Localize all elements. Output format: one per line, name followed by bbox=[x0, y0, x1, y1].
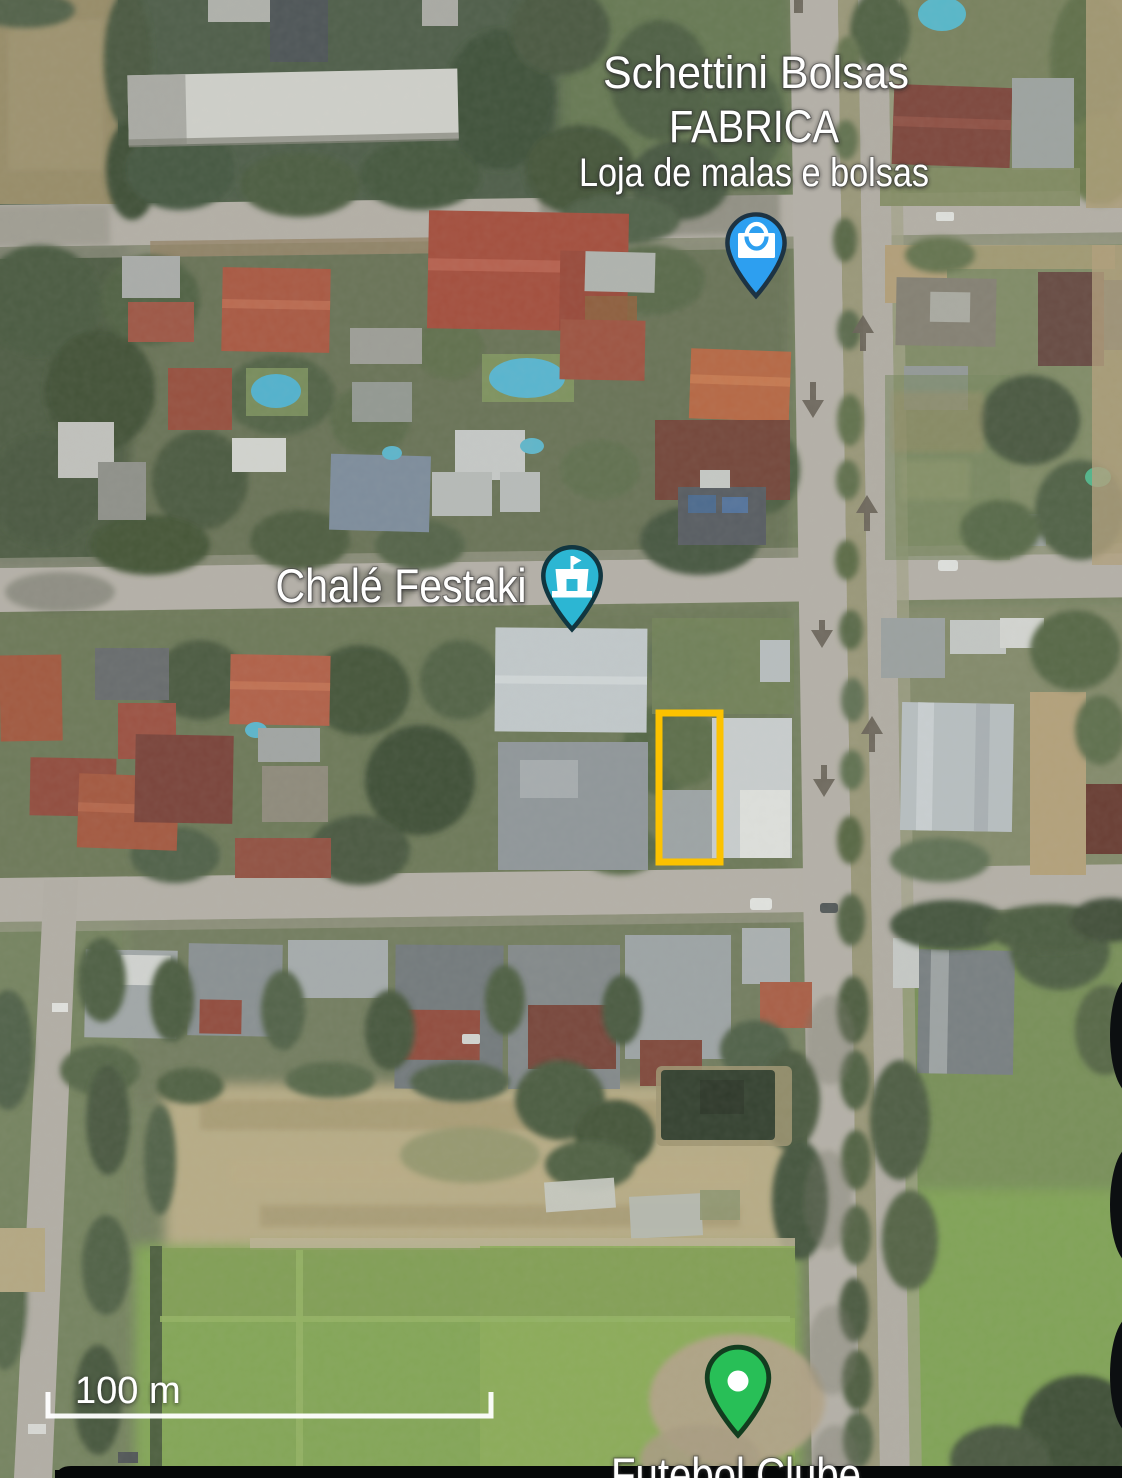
svg-text:Loja de malas e bolsas: Loja de malas e bolsas bbox=[579, 151, 929, 195]
svg-text:100 m: 100 m bbox=[75, 1370, 181, 1412]
svg-text:Schettini Bolsas: Schettini Bolsas bbox=[603, 47, 909, 98]
svg-text:FABRICA: FABRICA bbox=[669, 101, 839, 152]
svg-text:Futebol Clube: Futebol Clube bbox=[611, 1448, 861, 1478]
svg-text:Chalé Festaki: Chalé Festaki bbox=[276, 559, 527, 612]
